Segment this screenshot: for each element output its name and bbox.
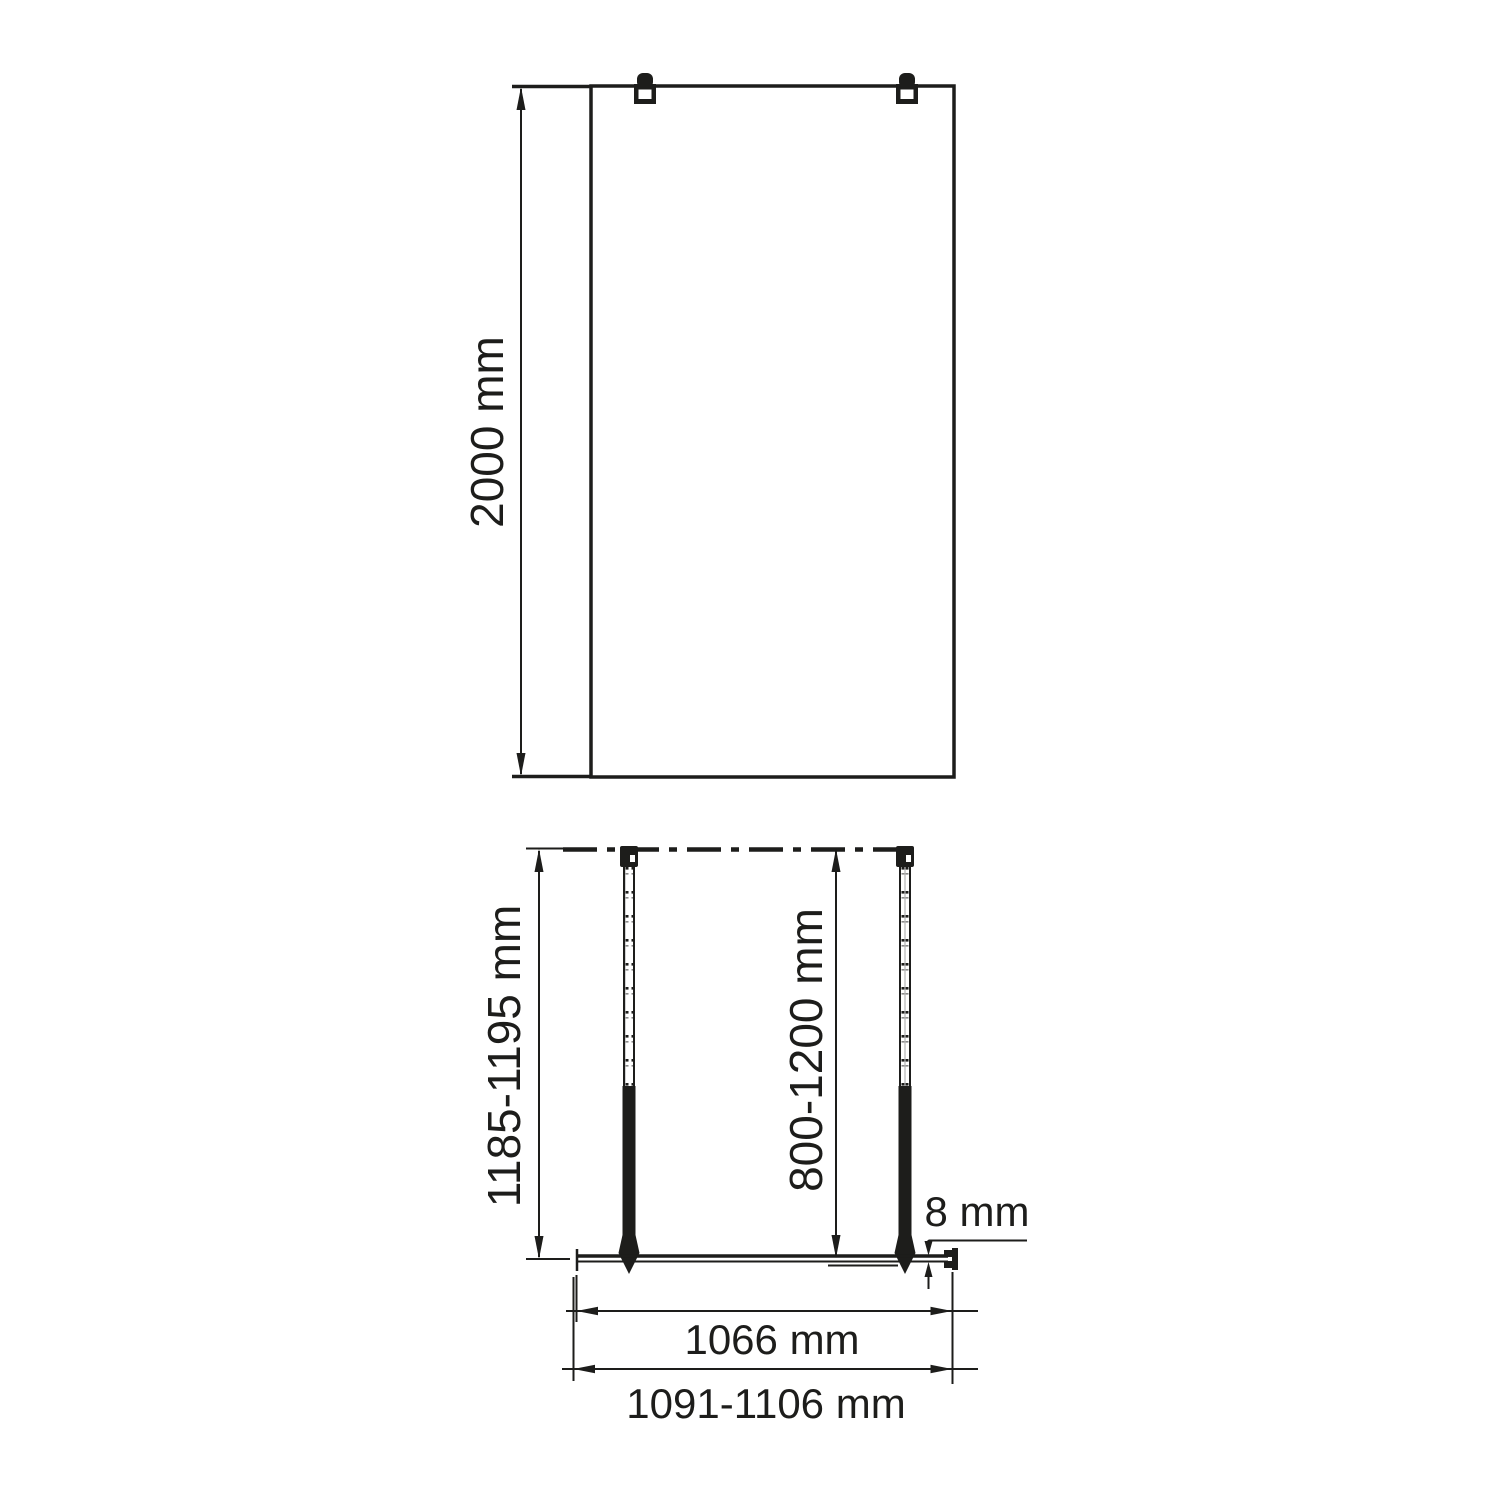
bar-range-dimension-label: 800-1200 mm — [783, 908, 829, 1192]
depth-dimension-label: 1185-1195 mm — [481, 905, 527, 1208]
support-bar-right — [895, 846, 916, 1274]
glass-panel-front — [591, 86, 954, 777]
overall-width-dimension-label: 1091-1106 mm — [626, 1383, 905, 1425]
bar-range-dimension — [828, 849, 898, 1266]
drawing-linework — [0, 0, 1500, 1500]
thickness-dimension-label: 8 mm — [925, 1191, 1030, 1233]
wall-profile-plan — [944, 1248, 958, 1270]
thickness-dimension — [925, 1240, 1028, 1289]
height-dimension-label: 2000 mm — [464, 336, 510, 528]
glass-width-dimension-label: 1066 mm — [684, 1319, 859, 1361]
support-clamp-right — [896, 73, 918, 104]
support-clamp-left — [634, 73, 656, 104]
depth-dimension — [526, 849, 570, 1260]
glass-width-dimension — [566, 1275, 978, 1322]
support-bar-left — [619, 846, 640, 1274]
height-dimension — [517, 87, 526, 776]
technical-drawing: 2000 mm 1185-1195 mm 800-1200 mm 8 mm 10… — [0, 0, 1500, 1500]
